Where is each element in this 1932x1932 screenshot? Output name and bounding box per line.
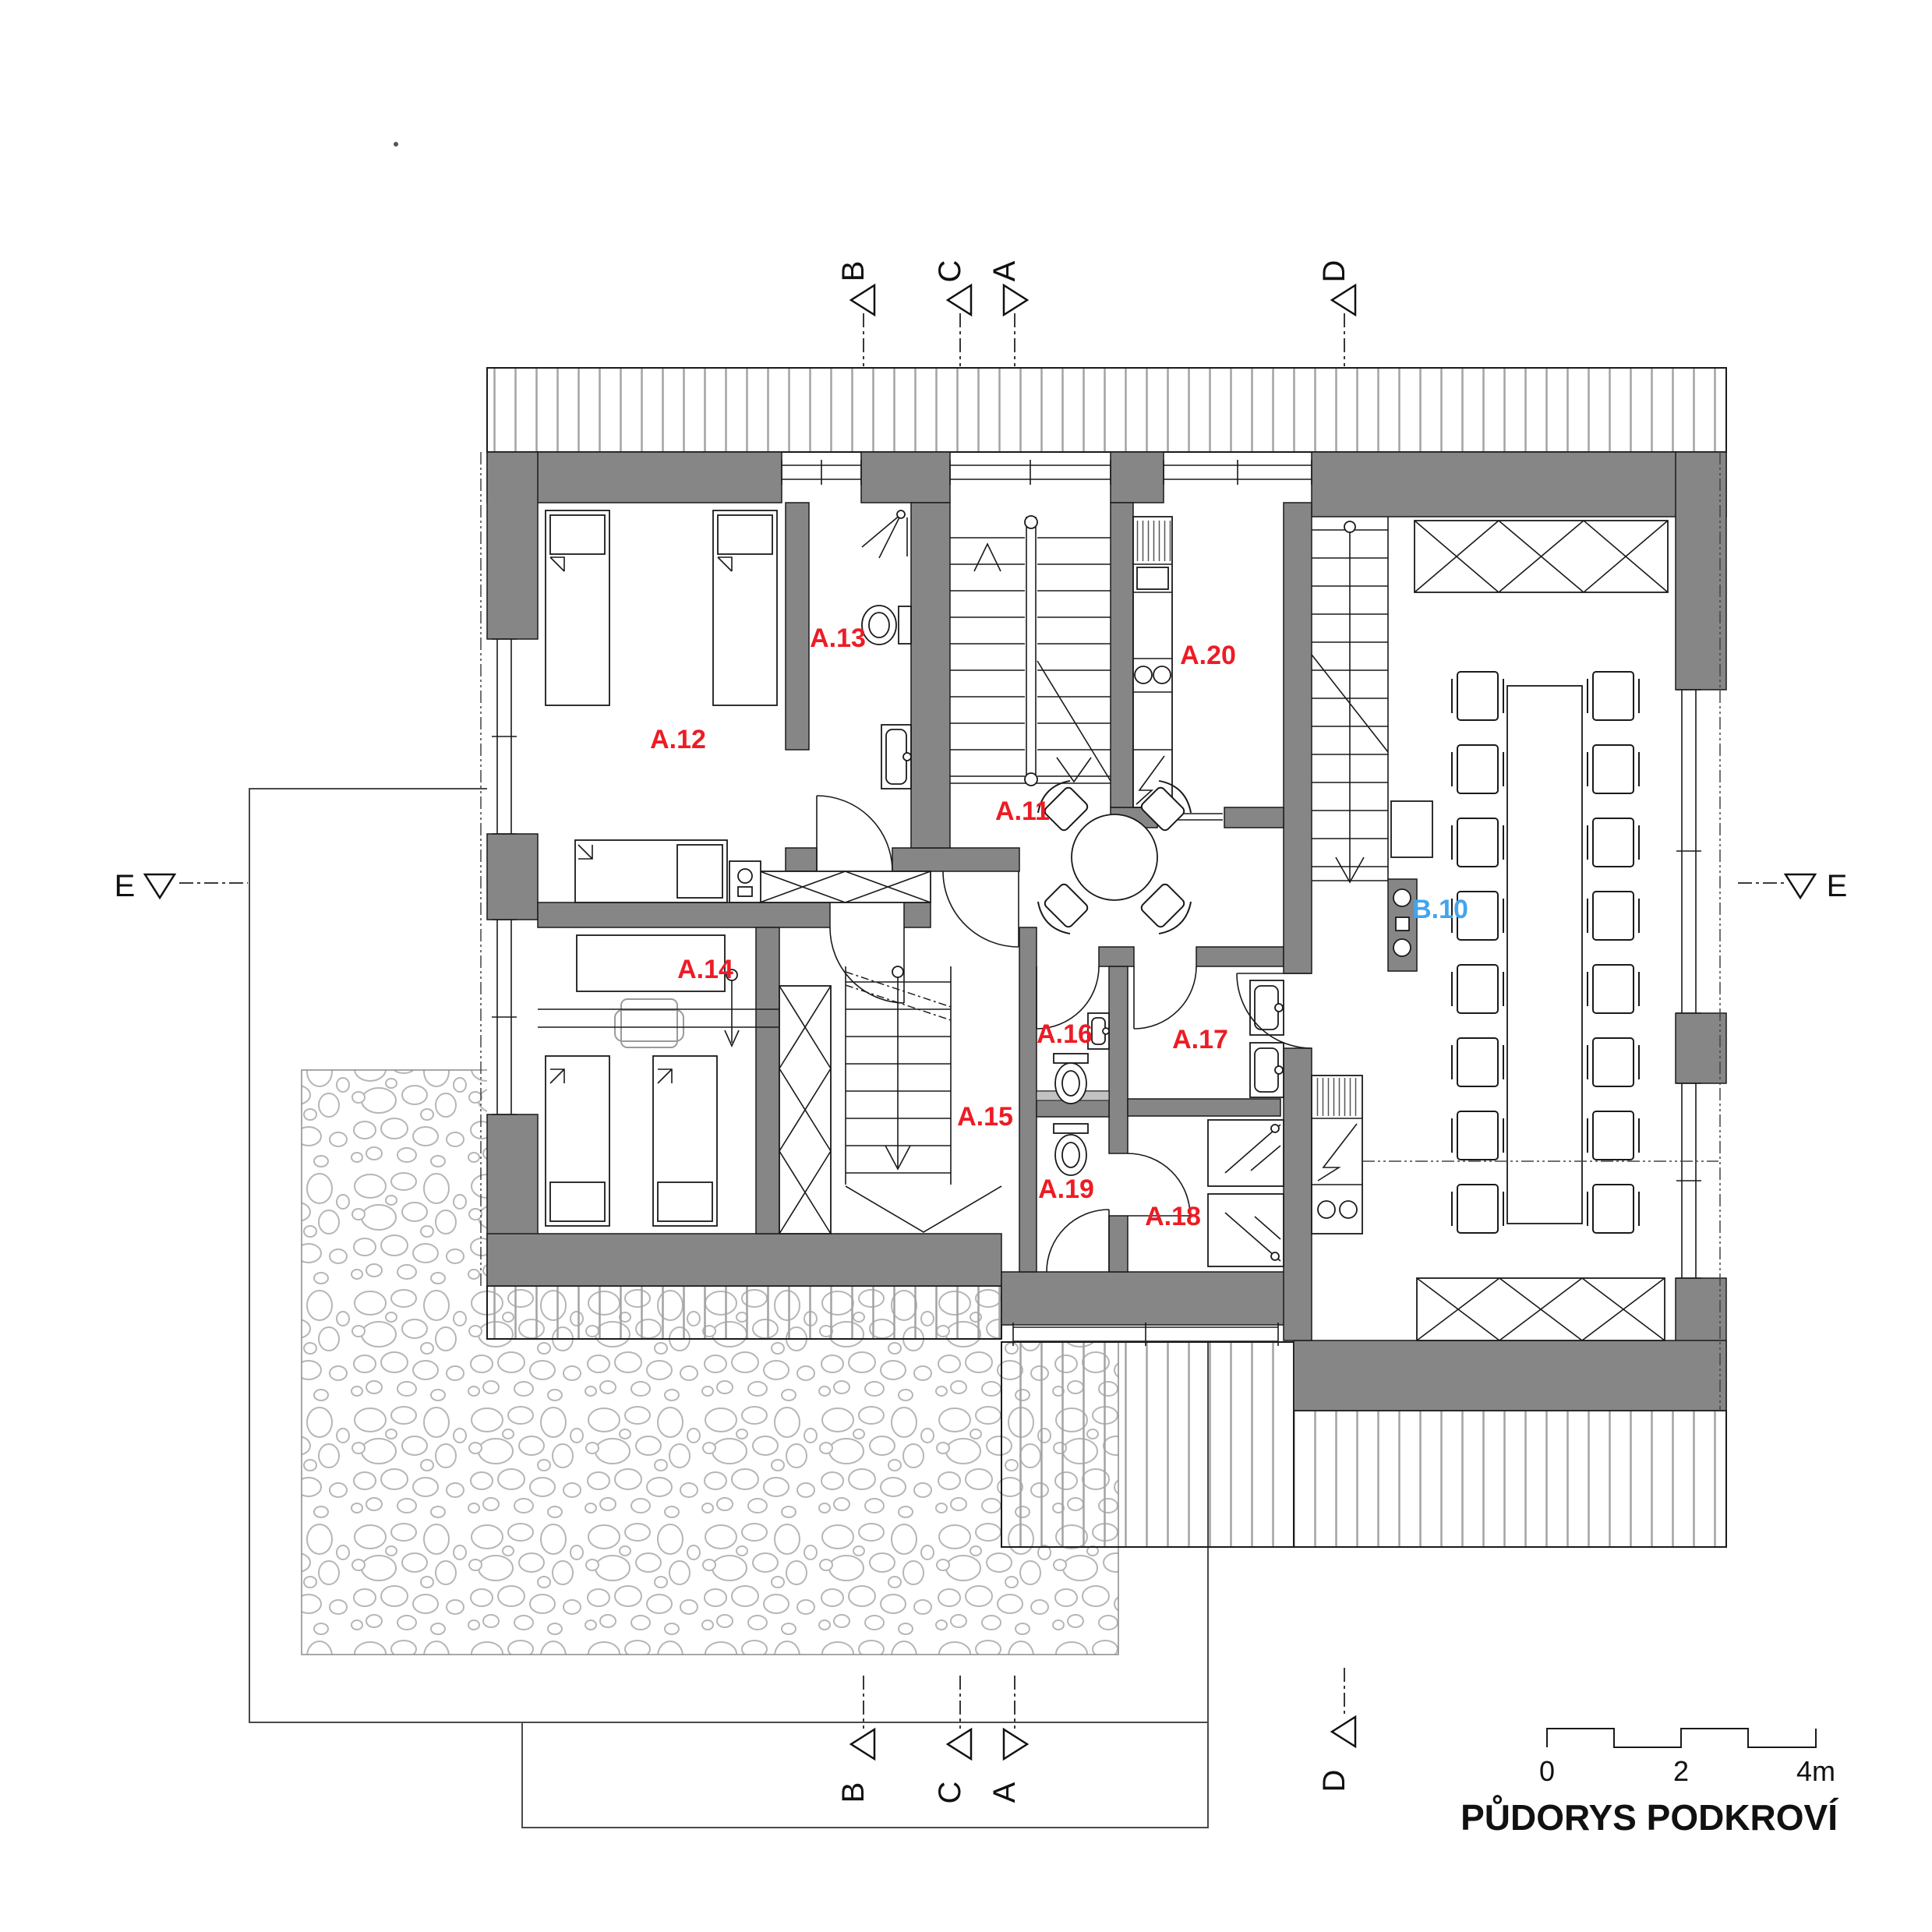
section-letter: A	[987, 260, 1022, 281]
room-label-a-13: A.13	[810, 623, 866, 653]
section-marker-e-left: E	[115, 869, 248, 903]
room-label-a-17: A.17	[1172, 1025, 1228, 1054]
section-letter: B	[836, 261, 871, 282]
drawing-title: PŮDORYS PODKROVÍ	[1460, 1795, 1838, 1838]
reference-dot	[394, 142, 398, 147]
section-triangle-icon	[1004, 285, 1027, 315]
section-letter: A	[987, 1782, 1022, 1803]
section-triangle-icon	[948, 285, 971, 315]
section-letter: B	[836, 1782, 871, 1803]
room-label-a-11: A.11	[995, 796, 1050, 826]
scale-label-4m: 4m	[1796, 1755, 1835, 1787]
scale-label-0: 0	[1539, 1755, 1555, 1787]
room-label-a-19: A.19	[1038, 1174, 1094, 1204]
section-triangle-icon	[851, 285, 874, 315]
room-label-a-12: A.12	[650, 725, 706, 754]
section-marker-d-top: D	[1317, 260, 1355, 366]
scale-bar: 0 2 4m	[1539, 1729, 1835, 1787]
room-label-a-14: A.14	[677, 955, 733, 984]
section-triangle-icon	[1332, 1717, 1355, 1747]
wc-a19	[1054, 1124, 1088, 1175]
section-marker-a-top: A	[987, 260, 1027, 366]
section-marker-b-top: B	[836, 261, 874, 366]
section-marker-d-bottom: D	[1317, 1668, 1355, 1792]
section-marker-e-right: E	[1738, 869, 1847, 903]
room-label-a-16: A.16	[1037, 1019, 1093, 1049]
section-letter: C	[933, 1782, 967, 1804]
section-marker-c-top: C	[933, 260, 971, 366]
floor-plan-page: A.11A.12A.13A.14A.15A.16A.17A.18A.19A.20…	[0, 0, 1932, 1932]
section-letter: E	[115, 869, 136, 903]
scale-label-2: 2	[1673, 1755, 1689, 1787]
room-label-a-20: A.20	[1180, 641, 1236, 670]
section-letter: D	[1317, 260, 1351, 283]
room-label-a-15: A.15	[957, 1102, 1013, 1132]
floor-plan-drawing: A.11A.12A.13A.14A.15A.16A.17A.18A.19A.20…	[0, 0, 1932, 1932]
section-letter: C	[933, 260, 967, 283]
section-triangle-icon	[1785, 874, 1815, 898]
section-letter: E	[1827, 869, 1848, 903]
section-triangle-icon	[145, 874, 175, 898]
section-letter: D	[1317, 1770, 1351, 1792]
section-triangle-icon	[1332, 285, 1355, 315]
room-label-a-18: A.18	[1145, 1202, 1201, 1231]
room-label-b-10: B.10	[1412, 895, 1468, 924]
